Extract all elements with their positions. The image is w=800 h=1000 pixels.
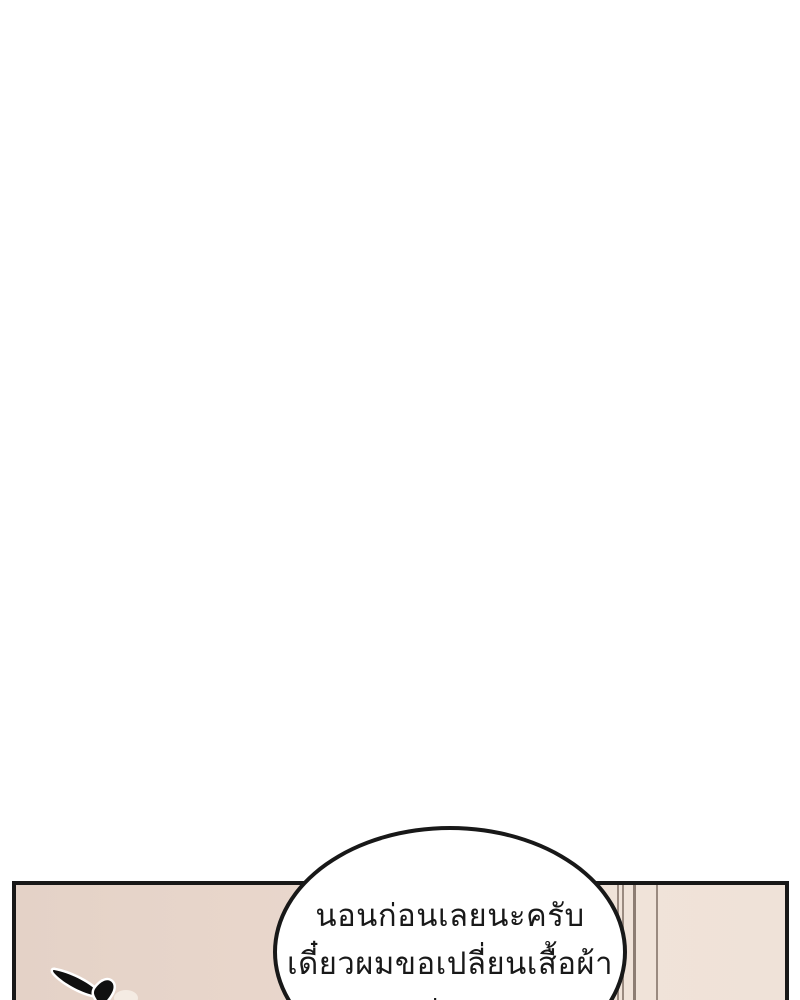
speech-line-1: นอนก่อนเลยนะครับ bbox=[277, 892, 623, 940]
webtoon-page: นอนก่อนเลยนะครับ เดี๋ยวผมขอเปลี่ยนเสื้อผ… bbox=[0, 0, 800, 1000]
speech-line-3-partial: ก่อน bbox=[277, 988, 623, 1000]
door-frame-line bbox=[656, 885, 658, 1000]
speech-text: นอนก่อนเลยนะครับ เดี๋ยวผมขอเปลี่ยนเสื้อผ… bbox=[277, 892, 623, 1000]
speech-bubble: นอนก่อนเลยนะครับ เดี๋ยวผมขอเปลี่ยนเสื้อผ… bbox=[273, 826, 627, 1000]
hair-strand bbox=[94, 980, 114, 1000]
head-highlight bbox=[114, 990, 138, 1000]
door-frame-line bbox=[633, 885, 636, 1000]
character-hair-icon bbox=[38, 957, 168, 1000]
hair-strand bbox=[53, 970, 98, 995]
speech-line-2: เดี๋ยวผมขอเปลี่ยนเสื้อผ้า bbox=[277, 940, 623, 988]
